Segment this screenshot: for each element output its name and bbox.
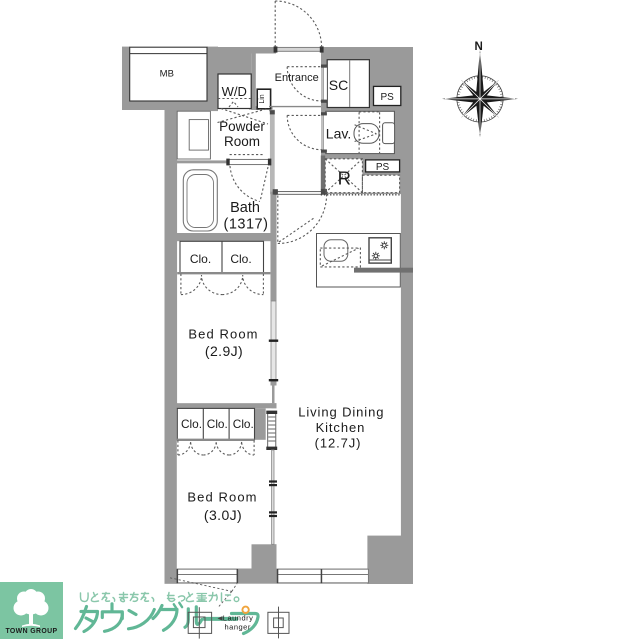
svg-text:Laundry: Laundry	[223, 614, 254, 623]
svg-text:Clo.: Clo.	[181, 417, 202, 431]
svg-text:Clo.: Clo.	[207, 417, 228, 431]
svg-text:W/D: W/D	[222, 84, 247, 99]
svg-text:(12.7J): (12.7J)	[315, 436, 362, 451]
svg-text:SC: SC	[329, 77, 348, 93]
svg-text:R: R	[338, 168, 351, 189]
svg-text:Living Dining: Living Dining	[298, 405, 384, 420]
svg-text:Powder: Powder	[219, 119, 265, 134]
svg-text:Clo.: Clo.	[233, 417, 254, 431]
svg-text:Lav.: Lav.	[326, 126, 351, 142]
svg-text:MB: MB	[160, 69, 174, 80]
svg-text:Bed Room: Bed Room	[188, 327, 258, 342]
svg-text:Kitchen: Kitchen	[316, 420, 366, 435]
svg-text:Clo.: Clo.	[230, 252, 251, 266]
svg-text:Room: Room	[224, 134, 260, 149]
svg-text:N: N	[474, 41, 482, 53]
svg-text:TOWN GROUP: TOWN GROUP	[5, 628, 57, 635]
svg-text:PS: PS	[381, 92, 395, 103]
svg-text:Bed Room: Bed Room	[187, 490, 257, 505]
svg-text:(1317): (1317)	[224, 217, 269, 233]
svg-text:Clo.: Clo.	[190, 252, 211, 266]
svg-text:PS: PS	[376, 162, 390, 173]
svg-text:(2.9J): (2.9J)	[205, 343, 243, 359]
svg-text:hanger: hanger	[225, 623, 251, 632]
svg-text:(3.0J): (3.0J)	[204, 507, 242, 523]
svg-text:Entrance: Entrance	[275, 72, 319, 84]
svg-text:Bath: Bath	[230, 200, 260, 216]
svg-text:Lin: Lin	[259, 94, 266, 103]
